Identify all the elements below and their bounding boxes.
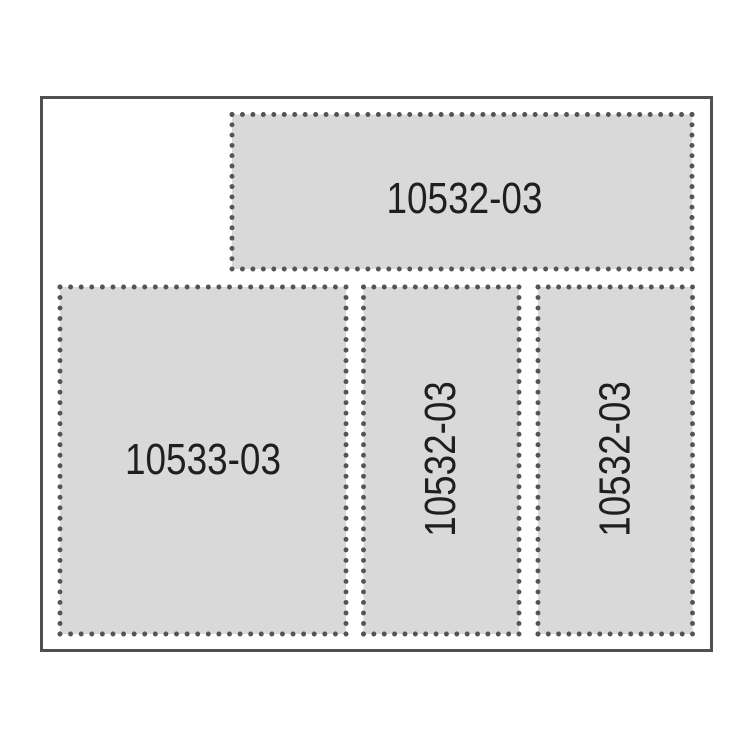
svg-text:10532-03: 10532-03 [592, 381, 640, 537]
svg-text:10533-03: 10533-03 [125, 436, 281, 484]
svg-text:10532-03: 10532-03 [417, 381, 465, 537]
svg-text:10532-03: 10532-03 [387, 175, 543, 223]
